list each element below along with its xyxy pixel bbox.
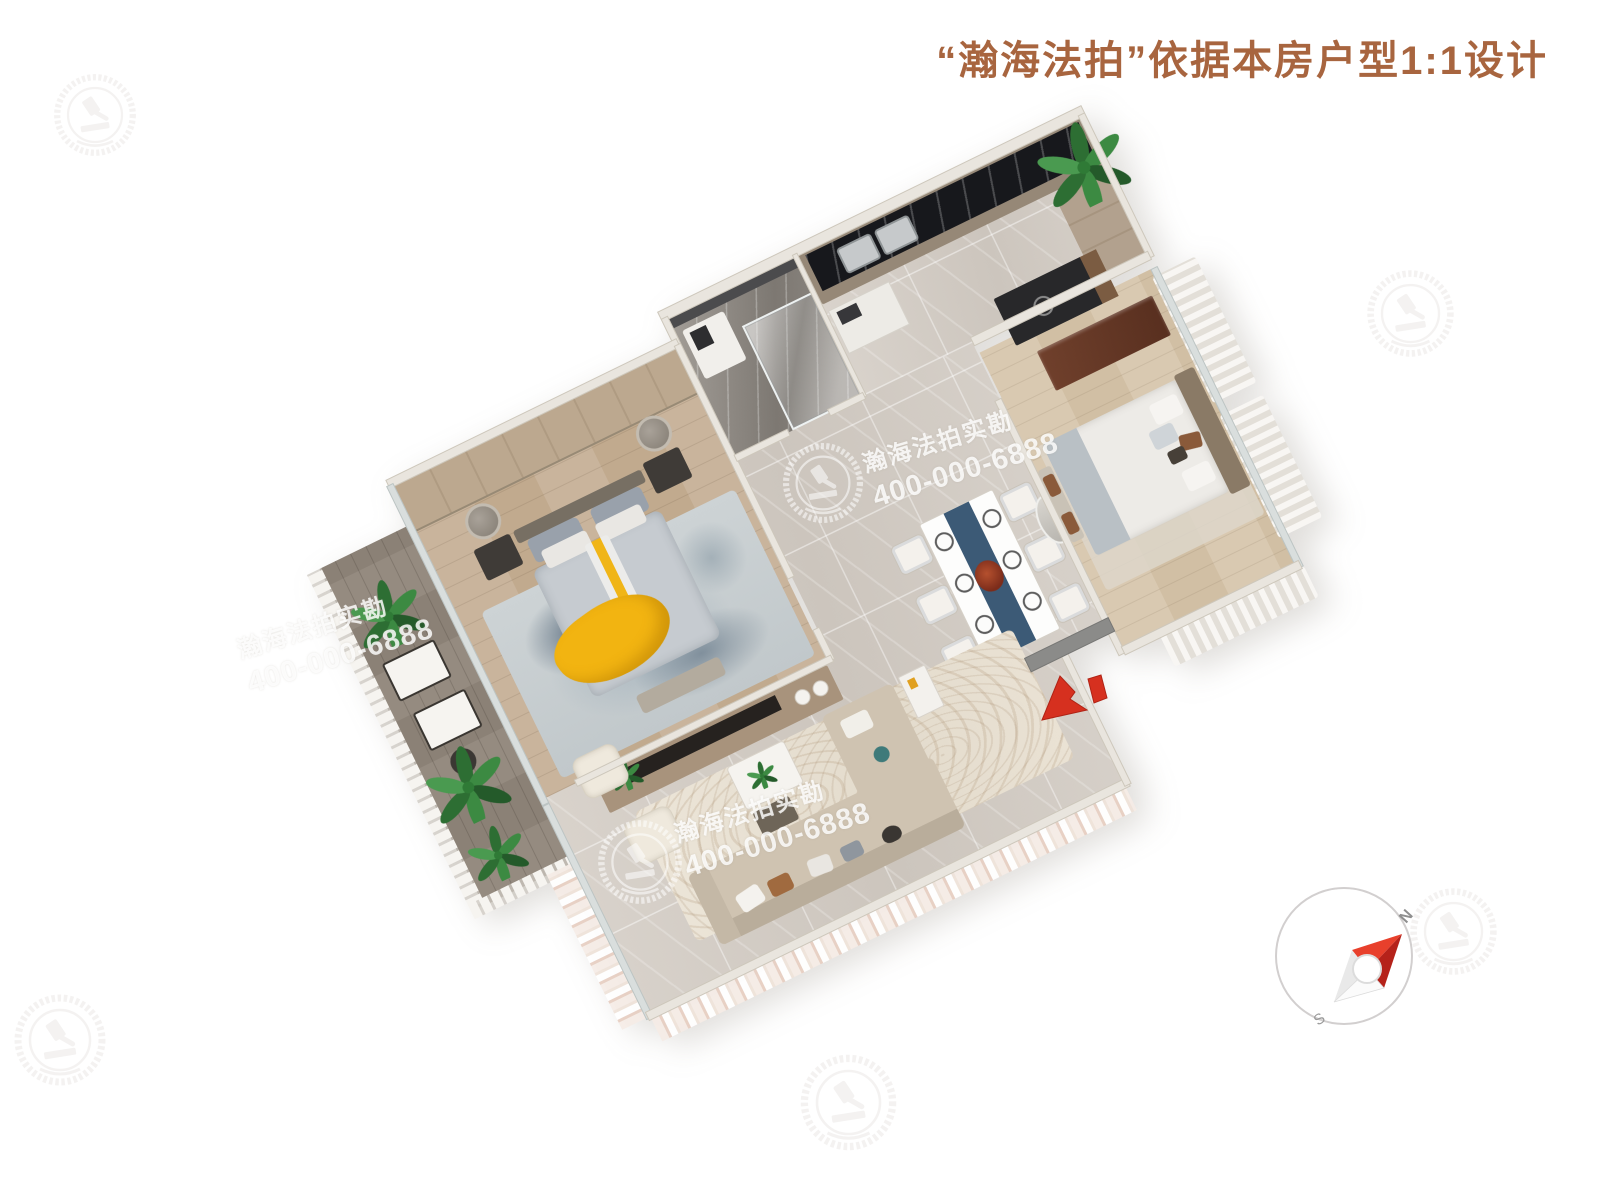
pillow	[839, 708, 875, 739]
entrance-arrow-icon	[1020, 652, 1120, 742]
page-title: “瀚海法拍”依据本房户型1:1设计	[936, 28, 1548, 86]
compass: N S	[1268, 878, 1428, 1038]
place-setting	[979, 506, 1004, 531]
place-setting	[1020, 588, 1045, 613]
console-decor	[792, 686, 813, 707]
ball-decor	[871, 744, 892, 765]
compass-south-label: S	[1311, 1010, 1329, 1030]
place-setting	[999, 547, 1024, 572]
hanhai-logo-watermark-faint	[50, 70, 140, 160]
countertop-appliance	[836, 303, 862, 325]
console-decor	[810, 678, 831, 699]
hanhai-logo-watermark-faint	[796, 1050, 901, 1155]
hanhai-logo-watermark	[594, 816, 686, 908]
cabinet-decor	[907, 677, 919, 689]
hanhai-logo-watermark-faint	[1363, 266, 1458, 361]
hanhai-logo-watermark-faint	[10, 990, 110, 1090]
vanity-basin	[689, 325, 714, 351]
floorplan	[265, 95, 1354, 1065]
compass-north-label: N	[1396, 907, 1416, 927]
hanhai-logo-watermark	[779, 439, 867, 527]
compass-hub	[1353, 955, 1381, 983]
